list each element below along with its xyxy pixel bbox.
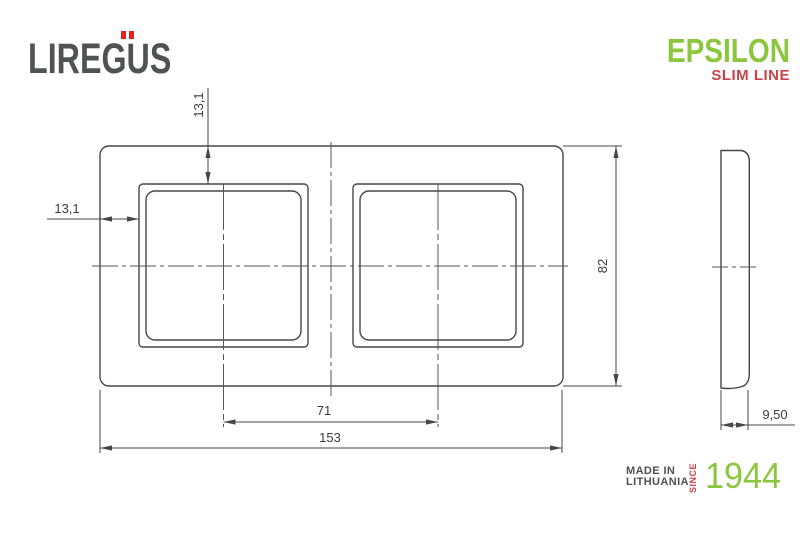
since-year: 1944 <box>705 458 781 494</box>
made-in-text: MADE IN LITHUANIA <box>626 466 689 488</box>
dim-label-top-offset: 13,1 <box>191 85 207 125</box>
since-label: SINCE <box>687 463 699 493</box>
centerlines <box>92 142 757 427</box>
technical-drawing <box>0 0 800 533</box>
dim-label-width: 153 <box>310 430 350 446</box>
side-view-outline <box>721 151 749 389</box>
dim-label-center-distance: 71 <box>304 403 344 419</box>
made-in-line2: LITHUANIA <box>626 477 689 488</box>
dim-label-height: 82 <box>595 246 611 286</box>
dim-label-depth: 9,50 <box>755 407 795 423</box>
dim-label-left-offset: 13,1 <box>47 201 87 217</box>
dimension-lines <box>47 88 795 453</box>
origin-badge: MADE IN LITHUANIA SINCE 1944 <box>626 460 796 500</box>
